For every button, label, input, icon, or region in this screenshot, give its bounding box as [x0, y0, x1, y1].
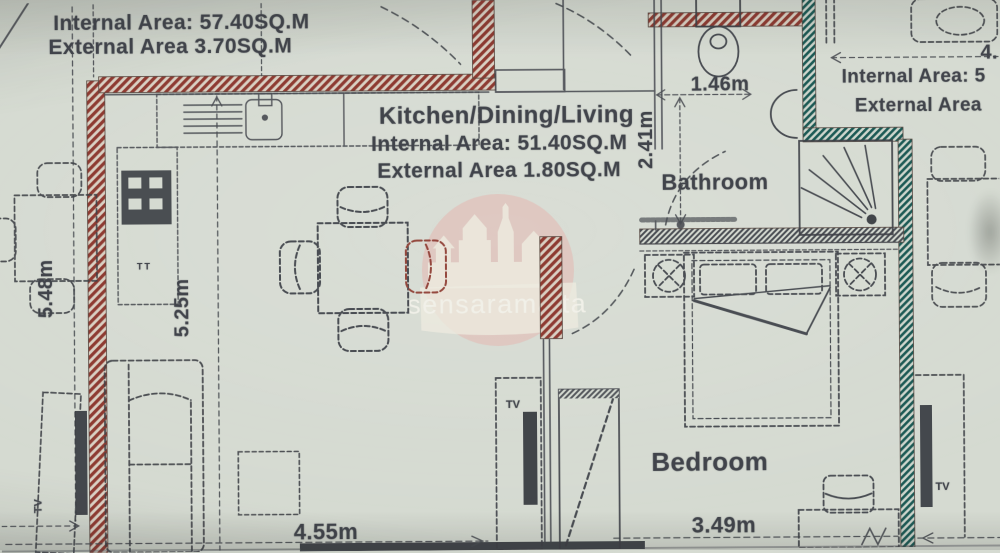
dim-living-length-label: 5.25m: [172, 278, 196, 337]
bedroom-bench: [799, 509, 899, 548]
tv-label-left: TV: [34, 499, 48, 513]
terrace-chair-left: [0, 218, 16, 261]
shower-spray-icon: [801, 145, 877, 225]
right-chair-top: [931, 147, 985, 181]
terrace-chair-top: [37, 163, 81, 197]
entry-niche: [496, 70, 565, 92]
chair-top: [337, 187, 387, 227]
hall-door-arc: [556, 3, 632, 58]
sofa: [105, 360, 204, 553]
bathroom-bottom-wall: [640, 227, 904, 244]
left-internal-area-label: Internal Area: 57.40SQ.M: [53, 11, 309, 35]
plan-drawing: sensaramalta: [0, 0, 1000, 553]
bathroom-fixtures: [696, 0, 893, 236]
floor-plan-photo: { "watermark": { "text": "sensaramalta" …: [0, 0, 1000, 550]
tv-screen-icon: [523, 412, 538, 505]
bed: [645, 251, 899, 549]
counter-tt-mark: TT: [137, 262, 152, 272]
tv-label-living: TV: [506, 400, 520, 412]
teal-wall-top: [802, 0, 816, 134]
left-tv-screen-icon: [75, 411, 88, 515]
left-sofa: [36, 392, 81, 553]
page-corner-line: [0, 3, 28, 49]
bedroom-label: Bedroom: [651, 448, 768, 476]
kitchen-room-label: Kitchen/Dining/Living: [379, 102, 634, 129]
right-dim-partial-label: 4.: [980, 43, 998, 64]
drainboard-icon: [184, 105, 242, 133]
teal-wall-right: [898, 139, 915, 547]
kitchen-internal-area-label: Internal Area: 51.40SQ.M: [371, 132, 627, 156]
bedroom-stool: [823, 475, 873, 512]
entry-door-arc: [381, 6, 460, 65]
tv-label-right: TV: [935, 482, 949, 494]
cooker-icon: [121, 170, 171, 224]
dim-bath-width-label: 1.46m: [691, 74, 750, 95]
dim-bedroom-width-label: 3.49m: [692, 513, 757, 537]
dim-bath-depth-label: 2.41m: [636, 110, 660, 169]
chair-left: [280, 241, 320, 293]
right-external-area-label: External Area: [855, 96, 982, 117]
red-wall-jamb: [540, 237, 563, 339]
left-unit: [0, 163, 99, 553]
dim-terrace-label: 5.48m: [36, 259, 60, 318]
red-wall-entry: [472, 0, 495, 78]
left-external-area-label: External Area 3.70SQ.M: [48, 35, 292, 59]
shower-tray: [799, 140, 893, 235]
basin-icon: [771, 90, 797, 138]
kitchen-external-area-label: External Area 1.80SQ.M: [377, 159, 621, 183]
right-tv-screen-icon: [920, 405, 933, 507]
red-wall-top-right: [648, 12, 805, 27]
rug: [238, 451, 299, 514]
dim-living-width-label: 4.55m: [294, 520, 359, 544]
pillow-left: [700, 264, 756, 294]
red-wall-top: [99, 74, 496, 93]
dining-table: [318, 223, 409, 314]
right-chair-bottom: [932, 263, 986, 307]
bed-frame: [684, 252, 839, 427]
right-internal-area-label: Internal Area: 5: [842, 67, 986, 88]
bathroom-label: Bathroom: [661, 170, 768, 194]
